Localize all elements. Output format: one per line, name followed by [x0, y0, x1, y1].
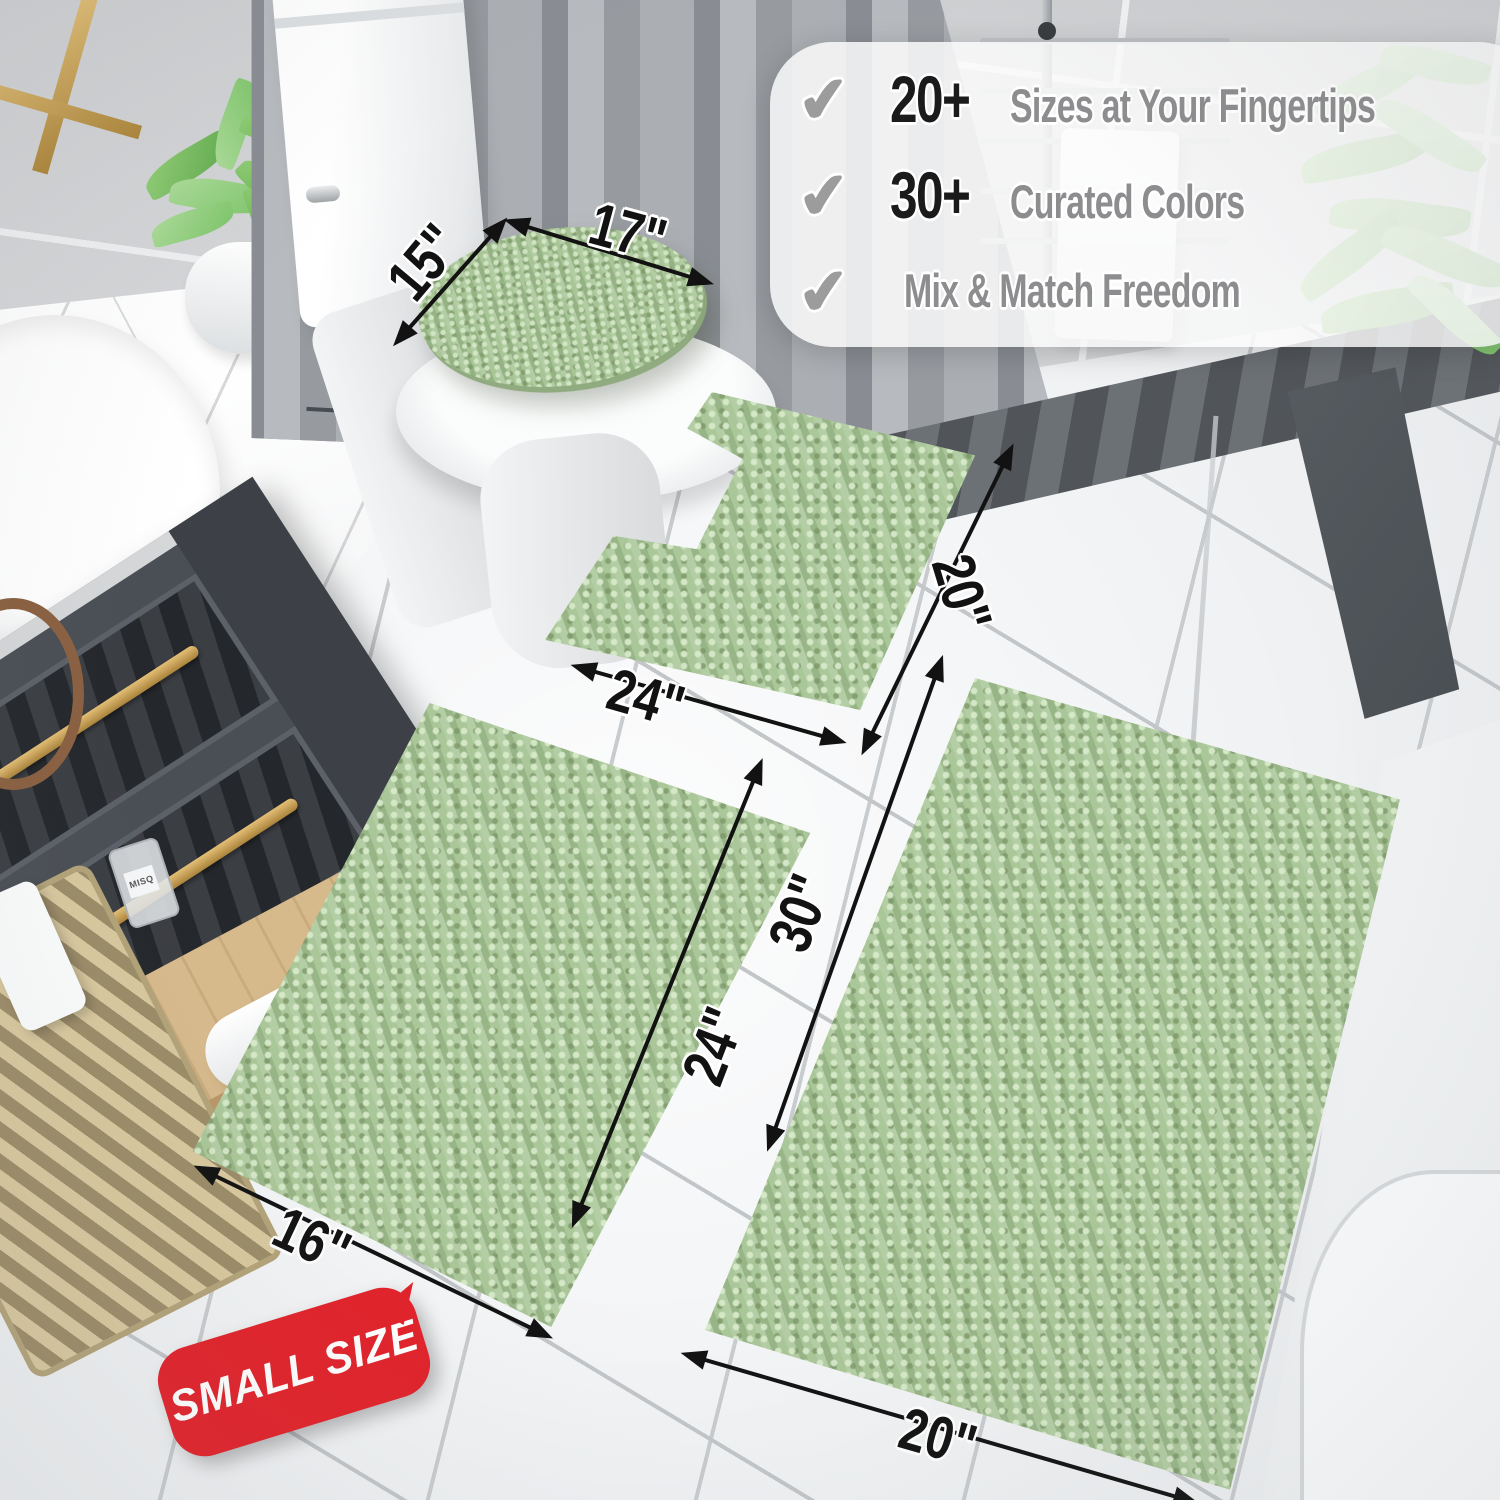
feature-row: ✔ 20+ Sizes at Your Fingertips [798, 55, 1500, 143]
feature-label: Curated Colors [1010, 174, 1244, 229]
check-icon: ✔ [795, 63, 893, 134]
rack-mount [1038, 22, 1056, 40]
toilet-tank-lid [274, 2, 464, 29]
feature-row: ✔ Mix & Match Freedom [798, 247, 1500, 335]
bathtub-rim [1300, 1170, 1500, 1500]
product-image: MISQ ✔ 20+ Sizes at Your Fingertips ✔ 30… [0, 0, 1500, 1500]
feature-stat: 20+ [890, 61, 969, 137]
feature-overlay-card: ✔ 20+ Sizes at Your Fingertips ✔ 30+ Cur… [770, 42, 1500, 347]
feature-label: Mix & Match Freedom [904, 263, 1240, 318]
bottle-label: MISQ [123, 865, 160, 899]
feature-label: Sizes at Your Fingertips [1010, 78, 1375, 133]
check-icon: ✔ [795, 159, 893, 230]
feature-row: ✔ 30+ Curated Colors [798, 151, 1500, 239]
check-icon: ✔ [795, 255, 893, 326]
feature-stat: 30+ [890, 157, 969, 233]
